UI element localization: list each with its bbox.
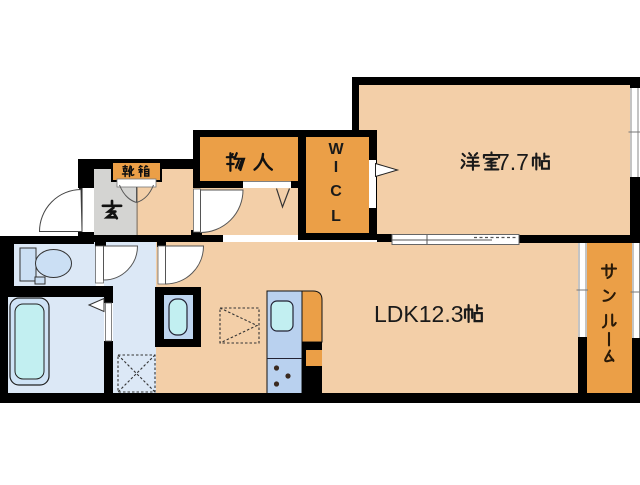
svg-text:LDK12.3: LDK12.3	[374, 301, 464, 327]
svg-text:I: I	[334, 159, 338, 176]
svg-text:W: W	[328, 141, 344, 158]
svg-text:L: L	[331, 208, 341, 225]
svg-text:7.7: 7.7	[497, 149, 529, 175]
svg-text:C: C	[330, 183, 342, 200]
